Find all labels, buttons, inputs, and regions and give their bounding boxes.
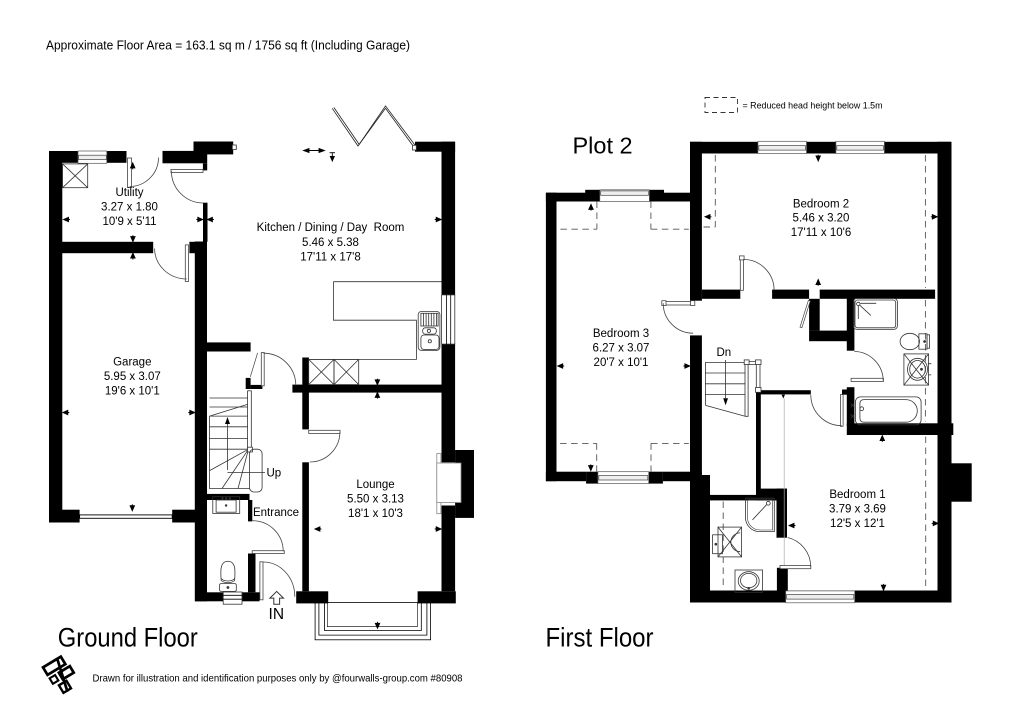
svg-text:10'9 x 5'11: 10'9 x 5'11 (102, 216, 156, 228)
svg-text:Dn: Dn (717, 347, 732, 359)
svg-text:3.27 x 1.80: 3.27 x 1.80 (101, 201, 158, 213)
svg-text:First Floor: First Floor (546, 623, 654, 653)
svg-text:19'6 x 10'1: 19'6 x 10'1 (105, 386, 160, 398)
svg-text:Up: Up (267, 468, 282, 480)
svg-text:Bedroom 2: Bedroom 2 (793, 199, 849, 211)
svg-text:Kitchen / Dining / Day Room: Kitchen / Dining / Day Room (257, 222, 405, 234)
svg-text:20'7 x 10'1: 20'7 x 10'1 (594, 357, 649, 369)
svg-text:Utility: Utility (115, 187, 143, 199)
svg-text:Ground Floor: Ground Floor (58, 623, 198, 653)
svg-text:Drawn for illustration and ide: Drawn for illustration and identificatio… (93, 674, 463, 685)
svg-text:6.27 x 3.07: 6.27 x 3.07 (593, 343, 650, 355)
svg-text:Bedroom 3: Bedroom 3 (593, 328, 649, 340)
svg-text:Approximate Floor Area = 163.1: Approximate Floor Area = 163.1 sq m / 17… (46, 38, 410, 53)
svg-text:= Reduced head height below 1.: = Reduced head height below 1.5m (743, 101, 883, 112)
svg-text:3.79 x 3.69: 3.79 x 3.69 (829, 504, 886, 516)
svg-text:18'1 x 10'3: 18'1 x 10'3 (348, 508, 403, 520)
svg-text:5.95 x 3.07: 5.95 x 3.07 (104, 371, 161, 383)
svg-text:Bedroom 1: Bedroom 1 (829, 489, 885, 501)
svg-text:Lounge: Lounge (356, 479, 394, 491)
svg-text:17'11 x 10'6: 17'11 x 10'6 (791, 227, 851, 239)
svg-text:Garage: Garage (113, 357, 151, 369)
svg-text:5.46 x 5.38: 5.46 x 5.38 (302, 237, 359, 249)
svg-text:Plot 2: Plot 2 (573, 132, 633, 158)
svg-text:Entrance: Entrance (253, 507, 299, 519)
svg-text:5.50 x 3.13: 5.50 x 3.13 (347, 494, 404, 506)
svg-text:IN: IN (269, 606, 285, 623)
svg-text:5.46 x 3.20: 5.46 x 3.20 (793, 213, 850, 225)
svg-text:12'5 x 12'1: 12'5 x 12'1 (830, 518, 885, 530)
svg-text:17'11 x 17'8: 17'11 x 17'8 (300, 251, 360, 263)
